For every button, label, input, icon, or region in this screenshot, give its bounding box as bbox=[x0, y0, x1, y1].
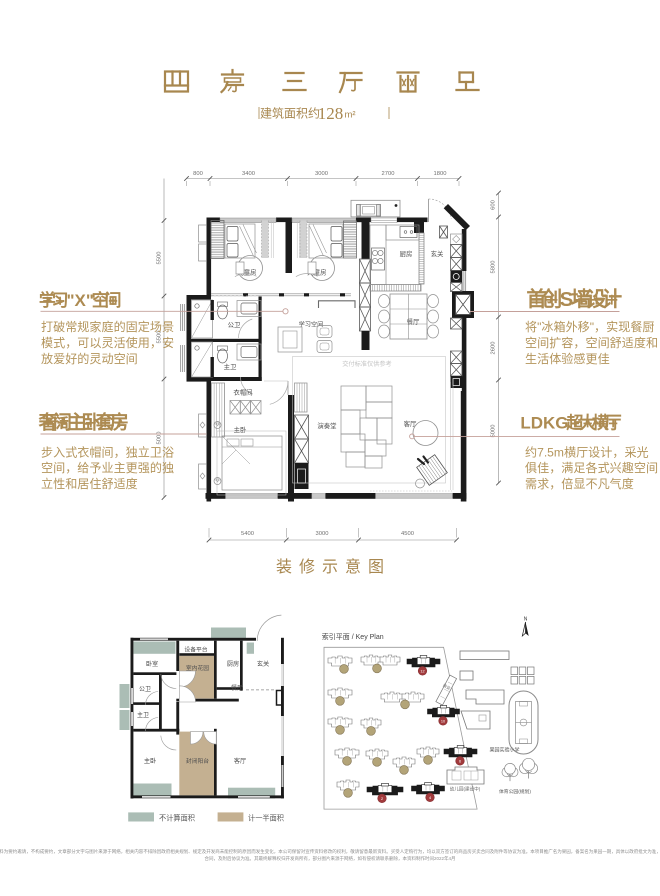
svg-text:室内花园: 室内花园 bbox=[186, 664, 209, 672]
svg-text:合同，及附后协议为准。其最终解释权归开发商所有，部分图片来源: 合同，及附后协议为准。其最终解释权归开发商所有，部分图片来源于网络，如有侵权请联… bbox=[204, 855, 455, 862]
svg-text:D: D bbox=[531, 414, 543, 433]
svg-text:m²: m² bbox=[344, 110, 355, 121]
svg-text:不计算面积: 不计算面积 bbox=[159, 814, 195, 823]
svg-text:放爱好的灵动空间: 放爱好的灵动空间 bbox=[41, 351, 138, 366]
svg-text:果园实验小学: 果园实验小学 bbox=[489, 747, 519, 754]
svg-text:立性和居住舒适度: 立性和居住舒适度 bbox=[41, 476, 138, 491]
svg-text:2: 2 bbox=[381, 797, 383, 801]
svg-text:3000: 3000 bbox=[316, 531, 329, 537]
svg-text:设备平台: 设备平台 bbox=[184, 646, 207, 654]
svg-text:12: 12 bbox=[420, 669, 424, 673]
svg-text:10: 10 bbox=[441, 719, 445, 723]
svg-text:生活体验感更佳: 生活体验感更佳 bbox=[525, 351, 610, 366]
svg-text:主卧: 主卧 bbox=[144, 757, 156, 765]
svg-text:餐厅: 餐厅 bbox=[231, 684, 243, 692]
svg-text:厨房: 厨房 bbox=[400, 249, 413, 258]
svg-text:将"冰箱外移"，实现餐厨: 将"冰箱外移"，实现餐厨 bbox=[525, 319, 655, 334]
svg-text:5400: 5400 bbox=[241, 531, 254, 537]
svg-text:模式，可以灵活使用，安: 模式，可以灵活使用，安 bbox=[41, 335, 174, 350]
svg-text:K: K bbox=[543, 414, 556, 433]
svg-text:主卫: 主卫 bbox=[224, 362, 237, 371]
svg-text:5800: 5800 bbox=[491, 261, 497, 274]
svg-text:L: L bbox=[520, 414, 530, 433]
svg-text:俱佳，满足各式兴趣空间: 俱佳，满足各式兴趣空间 bbox=[525, 460, 658, 475]
svg-text:1800: 1800 bbox=[434, 171, 447, 177]
svg-text:衣帽间: 衣帽间 bbox=[233, 388, 252, 397]
svg-text:步入式衣帽间，独立卫浴: 步入式衣帽间，独立卫浴 bbox=[41, 445, 174, 460]
svg-text:空间，给予业主更强的独: 空间，给予业主更强的独 bbox=[41, 460, 174, 475]
svg-text:建筑面积约: 建筑面积约 bbox=[260, 106, 320, 121]
svg-text:封闭阳台: 封闭阳台 bbox=[186, 757, 209, 765]
svg-text:主卧: 主卧 bbox=[234, 425, 247, 434]
svg-text:需求，倍显不凡气度: 需求，倍显不凡气度 bbox=[525, 476, 634, 491]
svg-text:128: 128 bbox=[318, 104, 344, 123]
svg-text:4500: 4500 bbox=[401, 531, 414, 537]
svg-text:交付标准仅供参考: 交付标准仅供参考 bbox=[342, 360, 392, 368]
svg-text:主卫: 主卫 bbox=[137, 711, 149, 719]
svg-text:X: X bbox=[75, 291, 87, 310]
svg-text:厨房: 厨房 bbox=[227, 660, 239, 668]
svg-text:客厅: 客厅 bbox=[234, 757, 246, 765]
svg-text:6: 6 bbox=[459, 759, 461, 763]
svg-text:3000: 3000 bbox=[315, 171, 328, 177]
svg-text:计一半面积: 计一半面积 bbox=[248, 814, 284, 823]
svg-text:本产品资料为要约邀请，不构成要约，文章部分文字与图片来源于网: 本产品资料为要约邀请，不构成要约，文章部分文字与图片来源于网络，相关内容不排除因… bbox=[0, 848, 660, 855]
svg-text:2700: 2700 bbox=[382, 171, 395, 177]
svg-text:公卫: 公卫 bbox=[228, 321, 241, 329]
svg-text:约7.5m横厅设计，采光: 约7.5m横厅设计，采光 bbox=[525, 445, 649, 460]
svg-text:N: N bbox=[524, 617, 528, 623]
svg-text:玄关: 玄关 bbox=[431, 249, 444, 258]
svg-text:装修示意图: 装修示意图 bbox=[276, 557, 391, 576]
svg-text:演奏堂: 演奏堂 bbox=[317, 421, 336, 430]
svg-text:5000: 5000 bbox=[157, 432, 163, 445]
svg-text:5500: 5500 bbox=[157, 252, 163, 265]
svg-text:卧室: 卧室 bbox=[146, 660, 158, 668]
svg-text:体育公园(规划): 体育公园(规划) bbox=[499, 788, 531, 795]
svg-text:2600: 2600 bbox=[491, 342, 497, 355]
svg-text:玄关: 玄关 bbox=[257, 660, 269, 668]
svg-text:空间扩容，空间舒适度和: 空间扩容，空间舒适度和 bbox=[525, 335, 658, 350]
svg-text:3400: 3400 bbox=[242, 171, 255, 177]
svg-text:4: 4 bbox=[429, 796, 431, 800]
svg-text:5000: 5000 bbox=[491, 425, 497, 438]
svg-text:索引平面 / Key Plan: 索引平面 / Key Plan bbox=[322, 632, 384, 641]
svg-text:": " bbox=[66, 291, 74, 310]
svg-text:800: 800 bbox=[193, 171, 203, 177]
svg-text:公卫: 公卫 bbox=[139, 686, 151, 693]
svg-text:600: 600 bbox=[491, 200, 497, 210]
svg-text:打破常规家庭的固定场景: 打破常规家庭的固定场景 bbox=[41, 319, 174, 334]
svg-text:幼儿园(建设中): 幼儿园(建设中) bbox=[450, 786, 481, 793]
